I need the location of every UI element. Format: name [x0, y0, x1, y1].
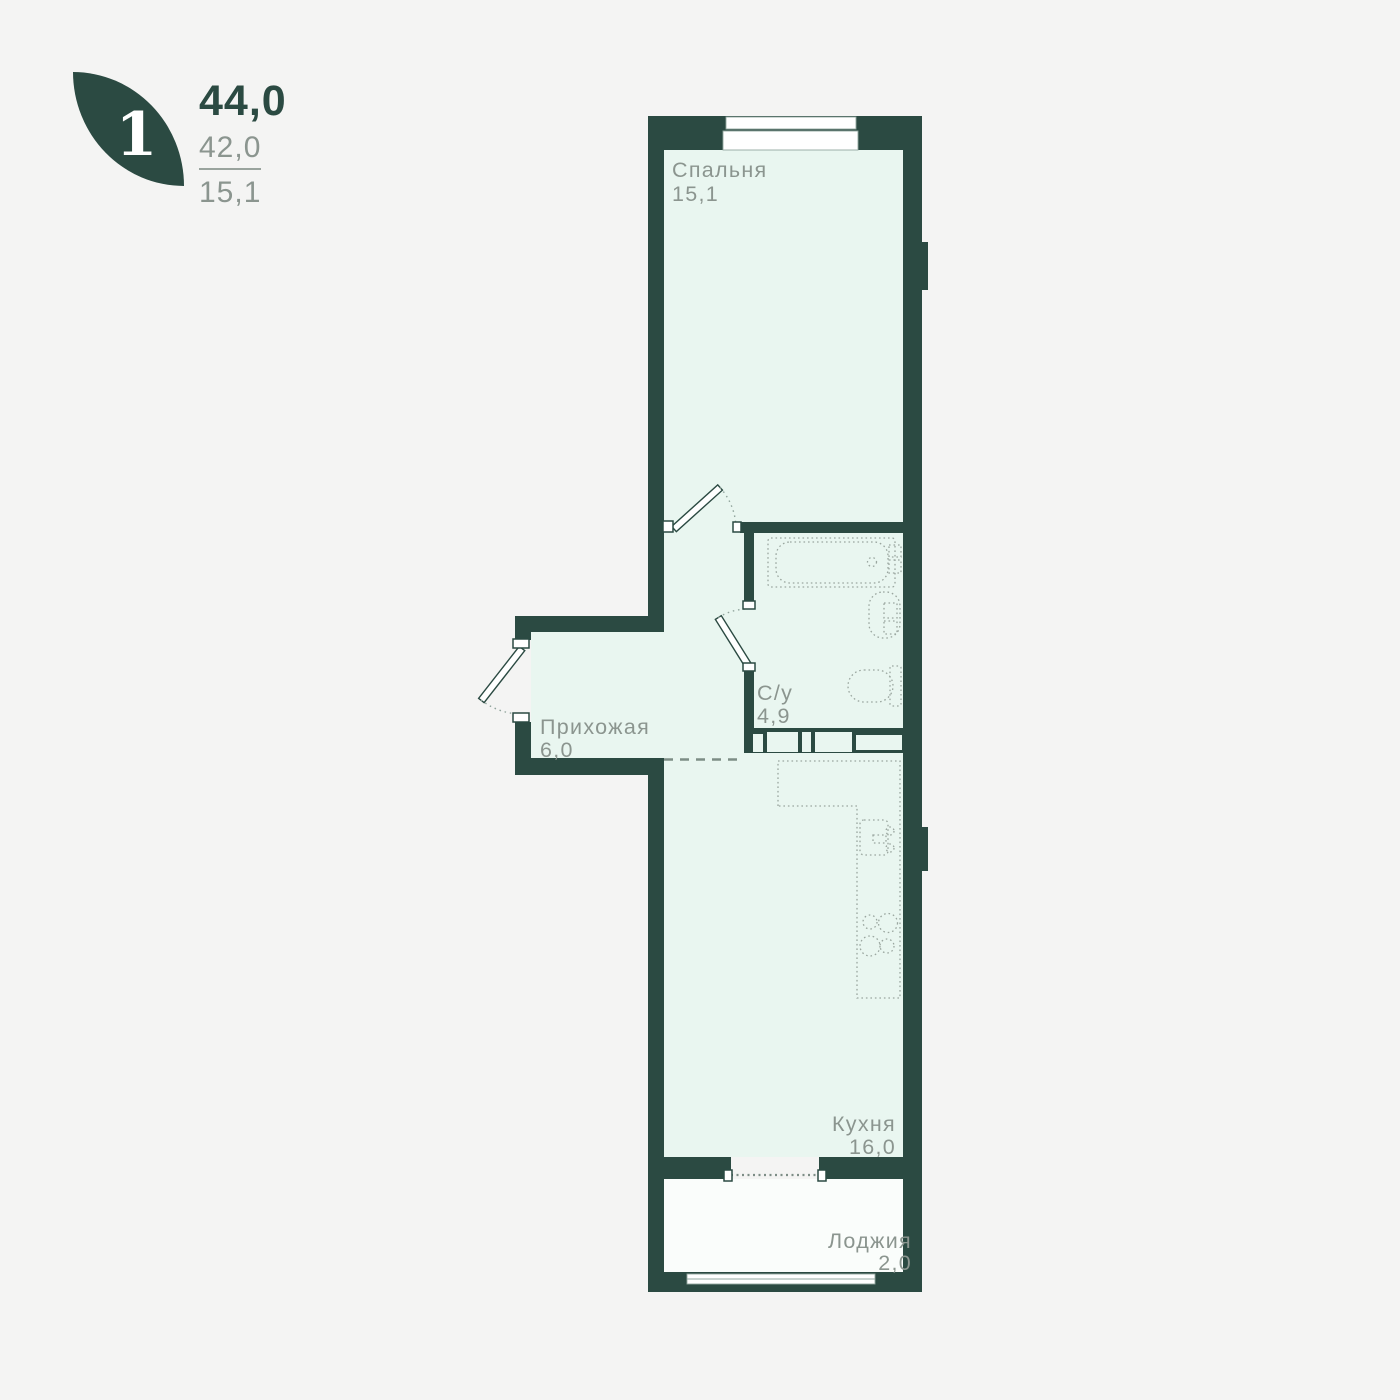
floor-fills — [531, 150, 903, 1272]
jamb — [733, 522, 741, 532]
hallway-wall-bottom — [515, 758, 664, 775]
floorplan-canvas: 1 44,0 42,0 15,1 — [0, 0, 1400, 1400]
vent-slot — [823, 732, 852, 752]
label-hallway-name: Прихожая — [540, 715, 650, 739]
jamb — [513, 639, 529, 648]
wall-left-upper — [648, 116, 664, 616]
floorplan-drawing: Спальня 15,1 С/у 4,9 Прихожая 6,0 Кухня … — [0, 0, 1400, 1400]
jamb — [743, 601, 755, 609]
vent-slot — [856, 735, 902, 750]
wall-right-pilaster-bottom — [922, 827, 928, 871]
label-bathroom-area: 4,9 — [757, 704, 791, 728]
hallway-wall-top — [515, 616, 664, 632]
entrance-door — [479, 646, 525, 702]
entrance-door-leaf — [479, 646, 525, 702]
jamb — [513, 713, 529, 722]
label-bedroom-area: 15,1 — [672, 182, 719, 206]
label-hallway-area: 6,0 — [540, 738, 574, 762]
loggia-floor — [664, 1179, 903, 1272]
jamb — [743, 663, 755, 671]
vent-slot — [753, 734, 763, 752]
bathroom-wall-left-a — [744, 533, 754, 603]
label-loggia-name: Лоджия — [828, 1229, 912, 1253]
loggia-divider-left — [648, 1157, 731, 1179]
bathroom-wall-left-b — [744, 671, 754, 728]
bedroom-window-outer — [726, 117, 856, 129]
shaft-vent-slots — [753, 732, 902, 752]
wall-left-lower — [648, 758, 664, 1292]
bedroom-window-inner — [723, 131, 858, 150]
vent-slot — [767, 732, 798, 752]
label-bedroom-name: Спальня — [672, 158, 768, 182]
wall-right — [903, 116, 922, 1292]
entrance-door-swing-arc — [481, 700, 522, 714]
vent-slot — [815, 732, 823, 752]
vent-slot — [802, 732, 811, 752]
hallway-wall-left-a — [515, 616, 531, 640]
wall-right-pilaster-top — [922, 242, 928, 290]
loggia-divider-right — [819, 1157, 922, 1179]
jamb — [724, 1170, 732, 1181]
jamb — [818, 1170, 826, 1181]
label-kitchen-area: 16,0 — [849, 1135, 896, 1159]
label-kitchen-name: Кухня — [832, 1112, 896, 1136]
label-loggia-area: 2,0 — [878, 1251, 912, 1275]
jamb — [663, 521, 673, 532]
bathroom-wall-top — [740, 522, 903, 533]
apartment-floor — [664, 150, 903, 1157]
label-bathroom-name: С/у — [757, 681, 793, 705]
